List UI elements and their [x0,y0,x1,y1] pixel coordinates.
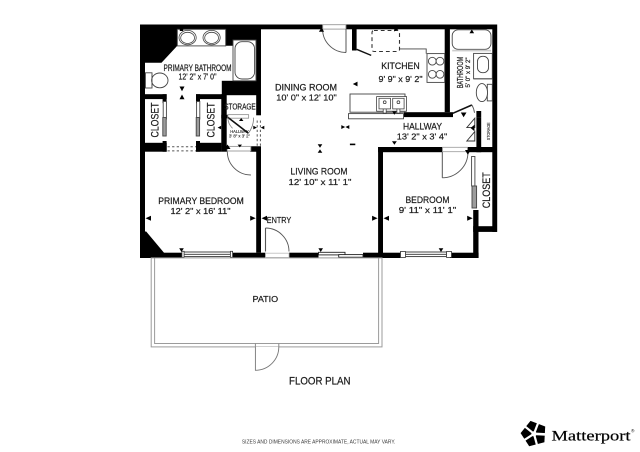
svg-text:12' 2" x 16' 11": 12' 2" x 16' 11" [171,206,231,216]
svg-text:KITCHEN: KITCHEN [381,61,420,71]
svg-text:9' 11" x 11' 1": 9' 11" x 11' 1" [399,205,457,215]
svg-text:Matterport: Matterport [552,428,631,444]
svg-text:CLOSET: CLOSET [150,102,162,137]
svg-text:12' 2" x 7' 0": 12' 2" x 7' 0" [179,72,217,81]
svg-text:5' 0" x 9' 2": 5' 0" x 9' 2" [465,57,472,88]
svg-text:BEDROOM: BEDROOM [406,195,450,205]
svg-text:FLOOR PLAN: FLOOR PLAN [289,375,351,387]
svg-text:10' 0" x 12' 10": 10' 0" x 12' 10" [276,93,337,103]
svg-text:HALLWAY: HALLWAY [403,122,442,132]
svg-text:LIVING ROOM: LIVING ROOM [291,166,348,176]
svg-text:BATHROOM: BATHROOM [456,57,465,89]
svg-text:PATIO: PATIO [253,294,279,304]
svg-text:3' 8" x 3' 2": 3' 8" x 3' 2" [229,134,250,139]
svg-text:PRIMARY BEDROOM: PRIMARY BEDROOM [158,196,244,206]
svg-text:13' 2" x 3' 4": 13' 2" x 3' 4" [397,131,448,141]
svg-text:9' 9" x 9' 2": 9' 9" x 9' 2" [379,74,423,84]
svg-text:STORAGE: STORAGE [224,102,256,111]
svg-text:STORAGE: STORAGE [486,122,491,140]
svg-text:12' 10" x 11' 1": 12' 10" x 11' 1" [289,177,352,187]
svg-text:SIZES AND DIMENSIONS ARE APPRO: SIZES AND DIMENSIONS ARE APPROXIMATE, AC… [242,440,396,446]
svg-text:CLOSET: CLOSET [481,172,493,208]
svg-text:ENTRY: ENTRY [267,215,292,225]
svg-text:DINING ROOM: DINING ROOM [275,82,337,92]
svg-text:CLOSET: CLOSET [205,102,217,137]
